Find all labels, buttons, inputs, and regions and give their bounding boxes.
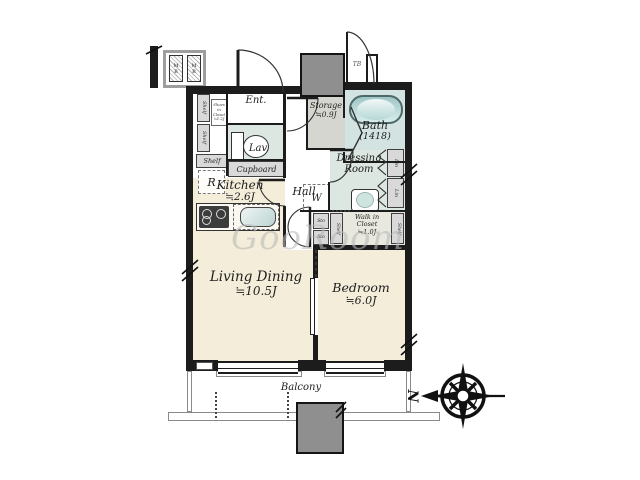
vent-box: [196, 362, 213, 370]
compass-point-w: [431, 392, 462, 401]
entrance-shelf-upper: Shelf: [197, 94, 210, 122]
trunk-box-pillar: [366, 54, 378, 84]
balcony-side-rail-right: [406, 371, 411, 412]
wall-storage-left: [306, 96, 308, 150]
compass-ring-inner: [449, 382, 477, 410]
bedroom-name: Bedroom: [332, 281, 389, 295]
wall-top-left: [186, 86, 305, 94]
shelf-horizontal: Shelf: [196, 154, 228, 168]
compass-point-n: [459, 363, 468, 395]
wall-top-right: [343, 82, 405, 90]
room-label-lav: Lav.: [249, 143, 269, 154]
wall-shoe-closet: [226, 93, 228, 176]
room-label-hall: Hall: [292, 186, 315, 198]
balcony-divider-left: [215, 392, 217, 418]
wall-dressing-left: [328, 182, 330, 212]
bedroom-size: ≒6.0J: [332, 295, 389, 307]
wall-right: [405, 82, 412, 371]
floorplan-canvas: M B M B TB Shelf Shoes in Closet ≒1.2J S…: [0, 0, 640, 480]
pillar-balcony: [296, 402, 344, 454]
balcony-divider-right: [287, 392, 289, 418]
living-name: Living Dining: [210, 270, 302, 285]
room-label-living: Living Dining ≒10.5J: [210, 270, 302, 299]
compass-point-e: [464, 392, 495, 401]
linen-cabinet-2-label: Lin: [393, 189, 398, 197]
wall-bottom-middle: [298, 360, 326, 371]
cupboard: Cupboard: [228, 161, 285, 177]
burner-3: [202, 216, 211, 225]
meter-box-1-label-b: B: [174, 69, 178, 75]
meter-box-2: M B: [187, 55, 201, 82]
meter-box-2-label-b: B: [192, 69, 196, 75]
linen-cabinet-2: Lin: [387, 178, 404, 208]
wall-partition-lower: [313, 335, 318, 362]
living-size: ≒10.5J: [210, 285, 302, 298]
wall-left: [186, 86, 193, 371]
shoes-in-closet-box: Shoes in Closet ≒1.2J: [211, 99, 227, 126]
wall-ent-lav: [228, 123, 285, 125]
wall-bottom-right: [384, 360, 412, 371]
stove: [199, 206, 229, 228]
compass-ring: [442, 375, 484, 417]
linen-cabinet-1: Lin: [387, 149, 404, 177]
wall-hall-left-upper: [283, 93, 286, 178]
room-label-storage: Storage ≒0.9J: [310, 102, 342, 119]
room-label-kitchen: Kitchen ≒2.6J: [217, 179, 264, 204]
balcony-side-rail-left: [187, 371, 192, 412]
cupboard-label: Cupboard: [236, 165, 276, 174]
window-bedroom: [326, 361, 384, 374]
shoes-closet-size: ≒1.2J: [214, 117, 225, 122]
bathtub-water: [357, 99, 395, 120]
room-label-ent: Ent.: [246, 95, 267, 106]
compass-diagonals: [450, 383, 476, 409]
entrance-shelf-upper-label: Shelf: [201, 101, 206, 114]
entrance-shelf-lower-label: Shelf: [201, 131, 206, 144]
shelf-horizontal-label: Shelf: [204, 157, 221, 165]
dressing-line1: Dressing: [336, 153, 381, 164]
compass-point-s: [459, 397, 468, 429]
pillar-top: [300, 53, 345, 97]
wall-neighbor-stub: [150, 46, 158, 88]
kitchen-size: ≒2.6J: [217, 192, 264, 204]
burner-2: [216, 209, 226, 219]
compass-north-arrowhead: [421, 390, 438, 402]
room-label-bath: Bath (1418): [359, 120, 391, 143]
watermark: GooRoom: [231, 218, 405, 258]
room-label-bedroom: Bedroom ≒6.0J: [332, 281, 389, 307]
bath-size: (1418): [359, 132, 391, 143]
meter-box-1: M B: [169, 55, 183, 82]
trunk-box-label: TB: [353, 62, 361, 69]
wall-storage-bottom: [306, 148, 345, 150]
window-living: [218, 361, 298, 374]
compass-hub: [457, 390, 470, 403]
sliding-door-panel: [310, 278, 315, 335]
entrance-shelf-lower: Shelf: [197, 124, 210, 152]
refrigerator-label: R: [207, 176, 215, 189]
wall-wic-top: [300, 210, 407, 212]
kitchen-name: Kitchen: [217, 179, 264, 192]
room-label-balcony: Balcony: [281, 382, 321, 393]
wash-basin-bowl: [356, 192, 374, 208]
storage-size: ≒0.9J: [310, 111, 342, 119]
dressing-line2: Room: [336, 164, 381, 175]
wall-lav-cupboard: [228, 159, 285, 161]
room-label-dressing: Dressing Room: [336, 153, 381, 175]
